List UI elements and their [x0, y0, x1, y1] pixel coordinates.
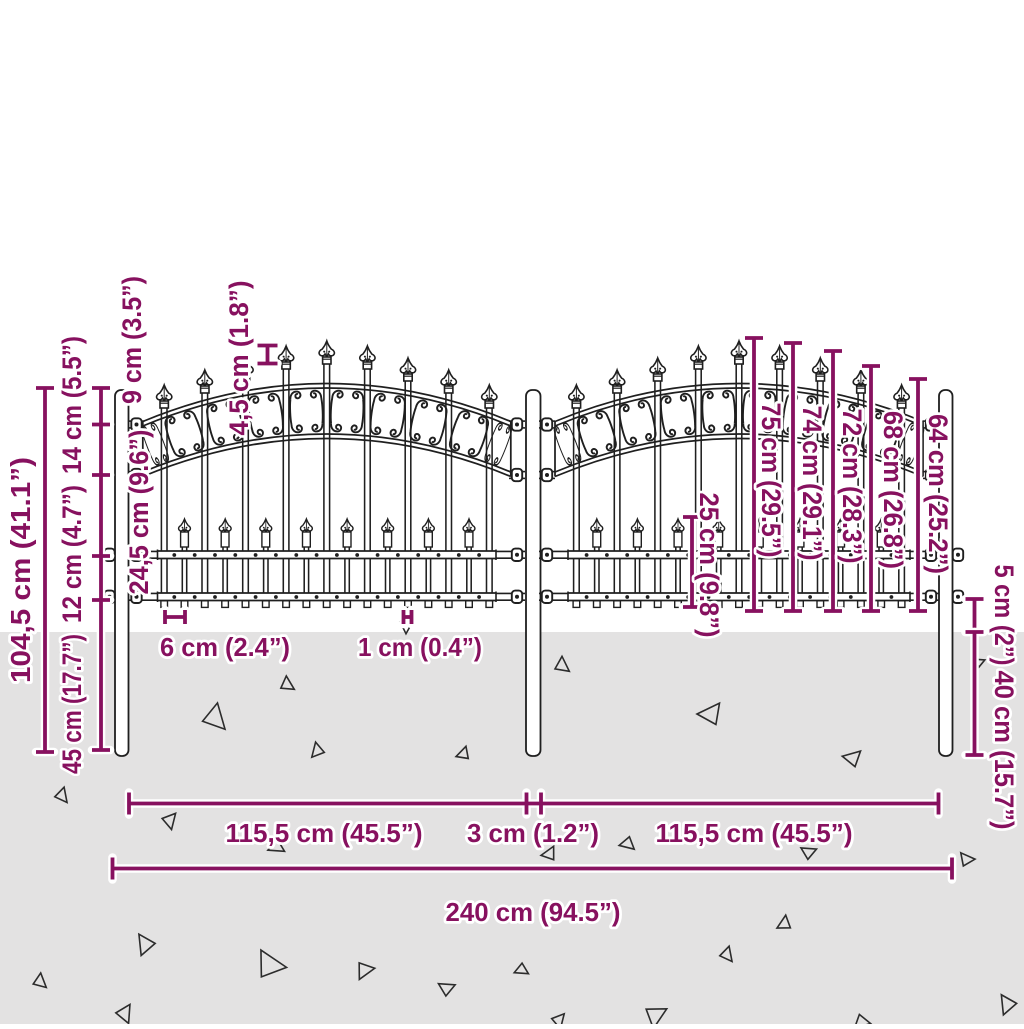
svg-text:240 cm (94.5”): 240 cm (94.5”): [446, 897, 621, 927]
svg-text:115,5 cm (45.5”): 115,5 cm (45.5”): [656, 818, 853, 848]
svg-text:68 cm (26.8”): 68 cm (26.8”): [878, 411, 908, 569]
svg-text:64 cm (25.2”): 64 cm (25.2”): [923, 414, 953, 574]
svg-text:12 cm (4.7”): 12 cm (4.7”): [57, 485, 87, 623]
svg-text:1 cm (0.4”): 1 cm (0.4”): [358, 632, 482, 662]
svg-text:72 cm (28.3”): 72 cm (28.3”): [837, 409, 867, 564]
svg-text:74 cm (29.1”): 74 cm (29.1”): [797, 406, 827, 561]
svg-text:14 cm (5.5”): 14 cm (5.5”): [57, 336, 87, 474]
svg-text:115,5 cm (45.5”): 115,5 cm (45.5”): [226, 818, 423, 848]
svg-text:25 cm (9.8”): 25 cm (9.8”): [694, 493, 724, 638]
svg-text:3 cm (1.2”): 3 cm (1.2”): [467, 818, 599, 848]
svg-text:6 cm (2.4”): 6 cm (2.4”): [160, 632, 290, 662]
svg-text:9 cm (3.5”): 9 cm (3.5”): [117, 276, 147, 404]
svg-text:40 cm (15.7”): 40 cm (15.7”): [989, 671, 1019, 830]
svg-text:45 cm (17.7”): 45 cm (17.7”): [57, 634, 87, 774]
svg-text:104,5 cm (41.1”): 104,5 cm (41.1”): [5, 457, 36, 683]
svg-text:4,5 cm (1.8”): 4,5 cm (1.8”): [224, 281, 254, 436]
svg-text:5 cm (2”): 5 cm (2”): [989, 565, 1019, 666]
svg-text:24,5 cm (9.6”): 24,5 cm (9.6”): [124, 430, 154, 595]
svg-text:75 cm (29.5”): 75 cm (29.5”): [756, 403, 786, 558]
